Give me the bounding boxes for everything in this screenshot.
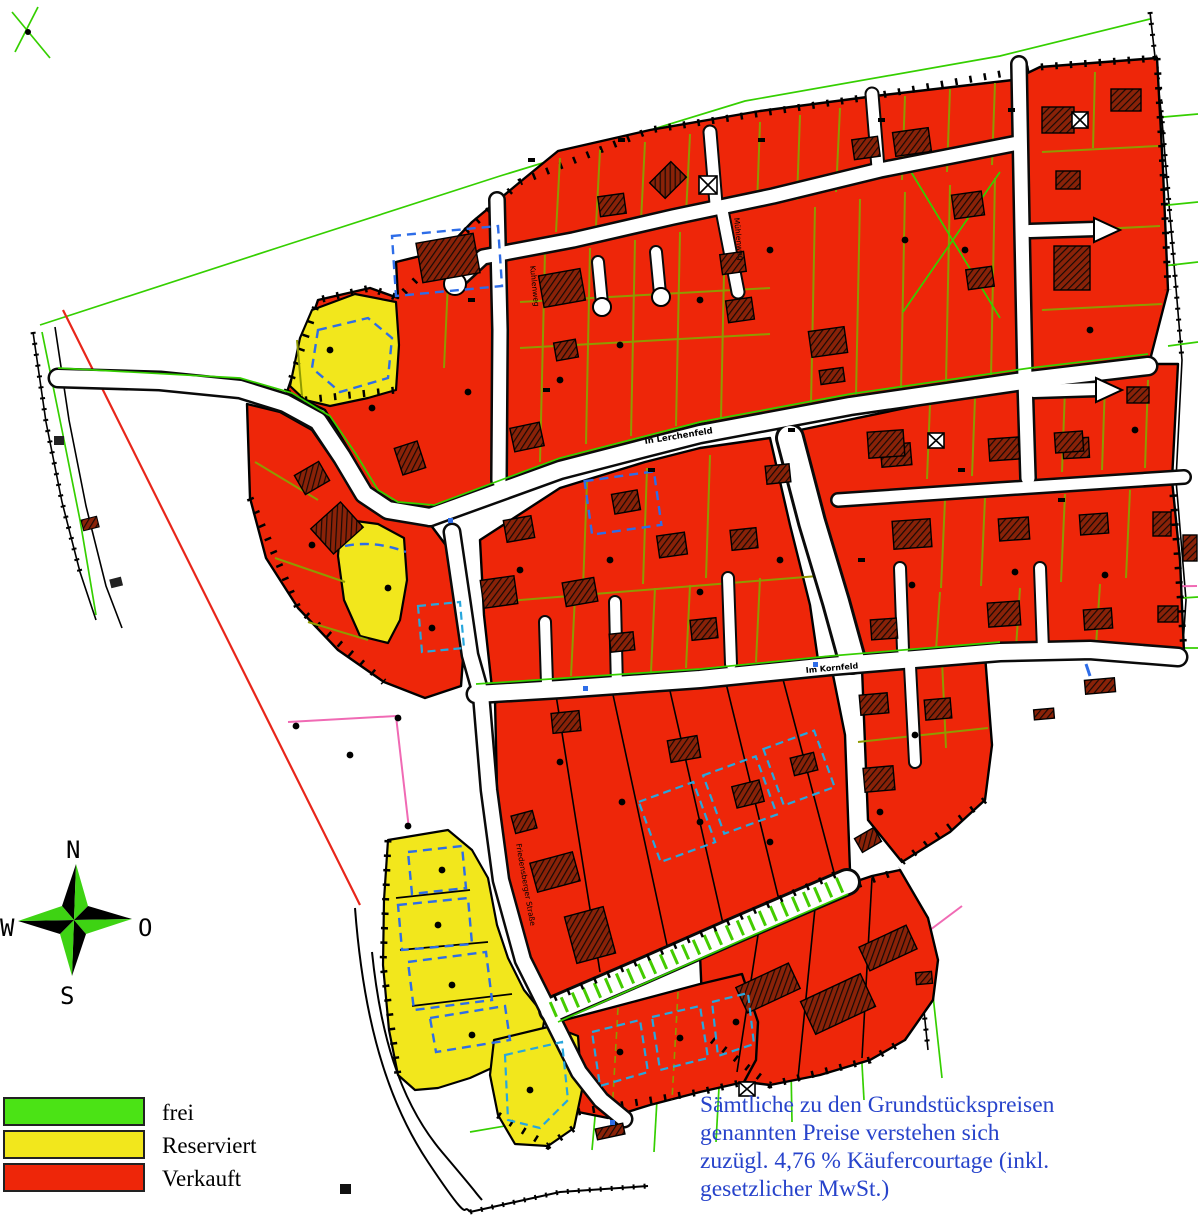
legend-label-frei: frei (162, 1100, 194, 1125)
price-note-line-3: zuzügl. 4,76 % Käufercourtage (inkl. (700, 1148, 1049, 1174)
site-plan-page: In Lerchenfeld Im Kornfeld Kuhlenweg Müh… (0, 0, 1200, 1220)
plot-reserviert-1 (290, 294, 399, 406)
compass-rose: N W O S (0, 836, 152, 1010)
block-verkauft-south-east (862, 655, 992, 862)
legend-swatch-frei (4, 1098, 144, 1125)
site-plan-map: In Lerchenfeld Im Kornfeld Kuhlenweg Müh… (0, 0, 1200, 1220)
compass-south-label: S (60, 982, 74, 1010)
legend-label-reserviert: Reserviert (162, 1133, 257, 1158)
price-note-line-2: genannten Preise verstehen sich (700, 1120, 1000, 1146)
legend-swatch-reserviert (4, 1131, 144, 1158)
existing-building (340, 1184, 351, 1194)
compass-east-label: O (138, 914, 152, 942)
pink-parcel-line (288, 716, 409, 829)
price-note-line-4: gesetzlicher MwSt.) (700, 1176, 889, 1202)
existing-building (54, 436, 64, 445)
price-note-line-1: Sämtliche zu den Grundstückspreisen (700, 1092, 1055, 1118)
legend-label-verkauft: Verkauft (162, 1166, 242, 1191)
legend-swatch-verkauft (4, 1164, 144, 1191)
compass-north-label: N (66, 836, 80, 864)
compass-west-label: W (0, 914, 15, 942)
legend: frei Reserviert Verkauft (4, 1098, 257, 1191)
price-note: Sämtliche zu den Grundstückspreisen gena… (700, 1092, 1055, 1202)
